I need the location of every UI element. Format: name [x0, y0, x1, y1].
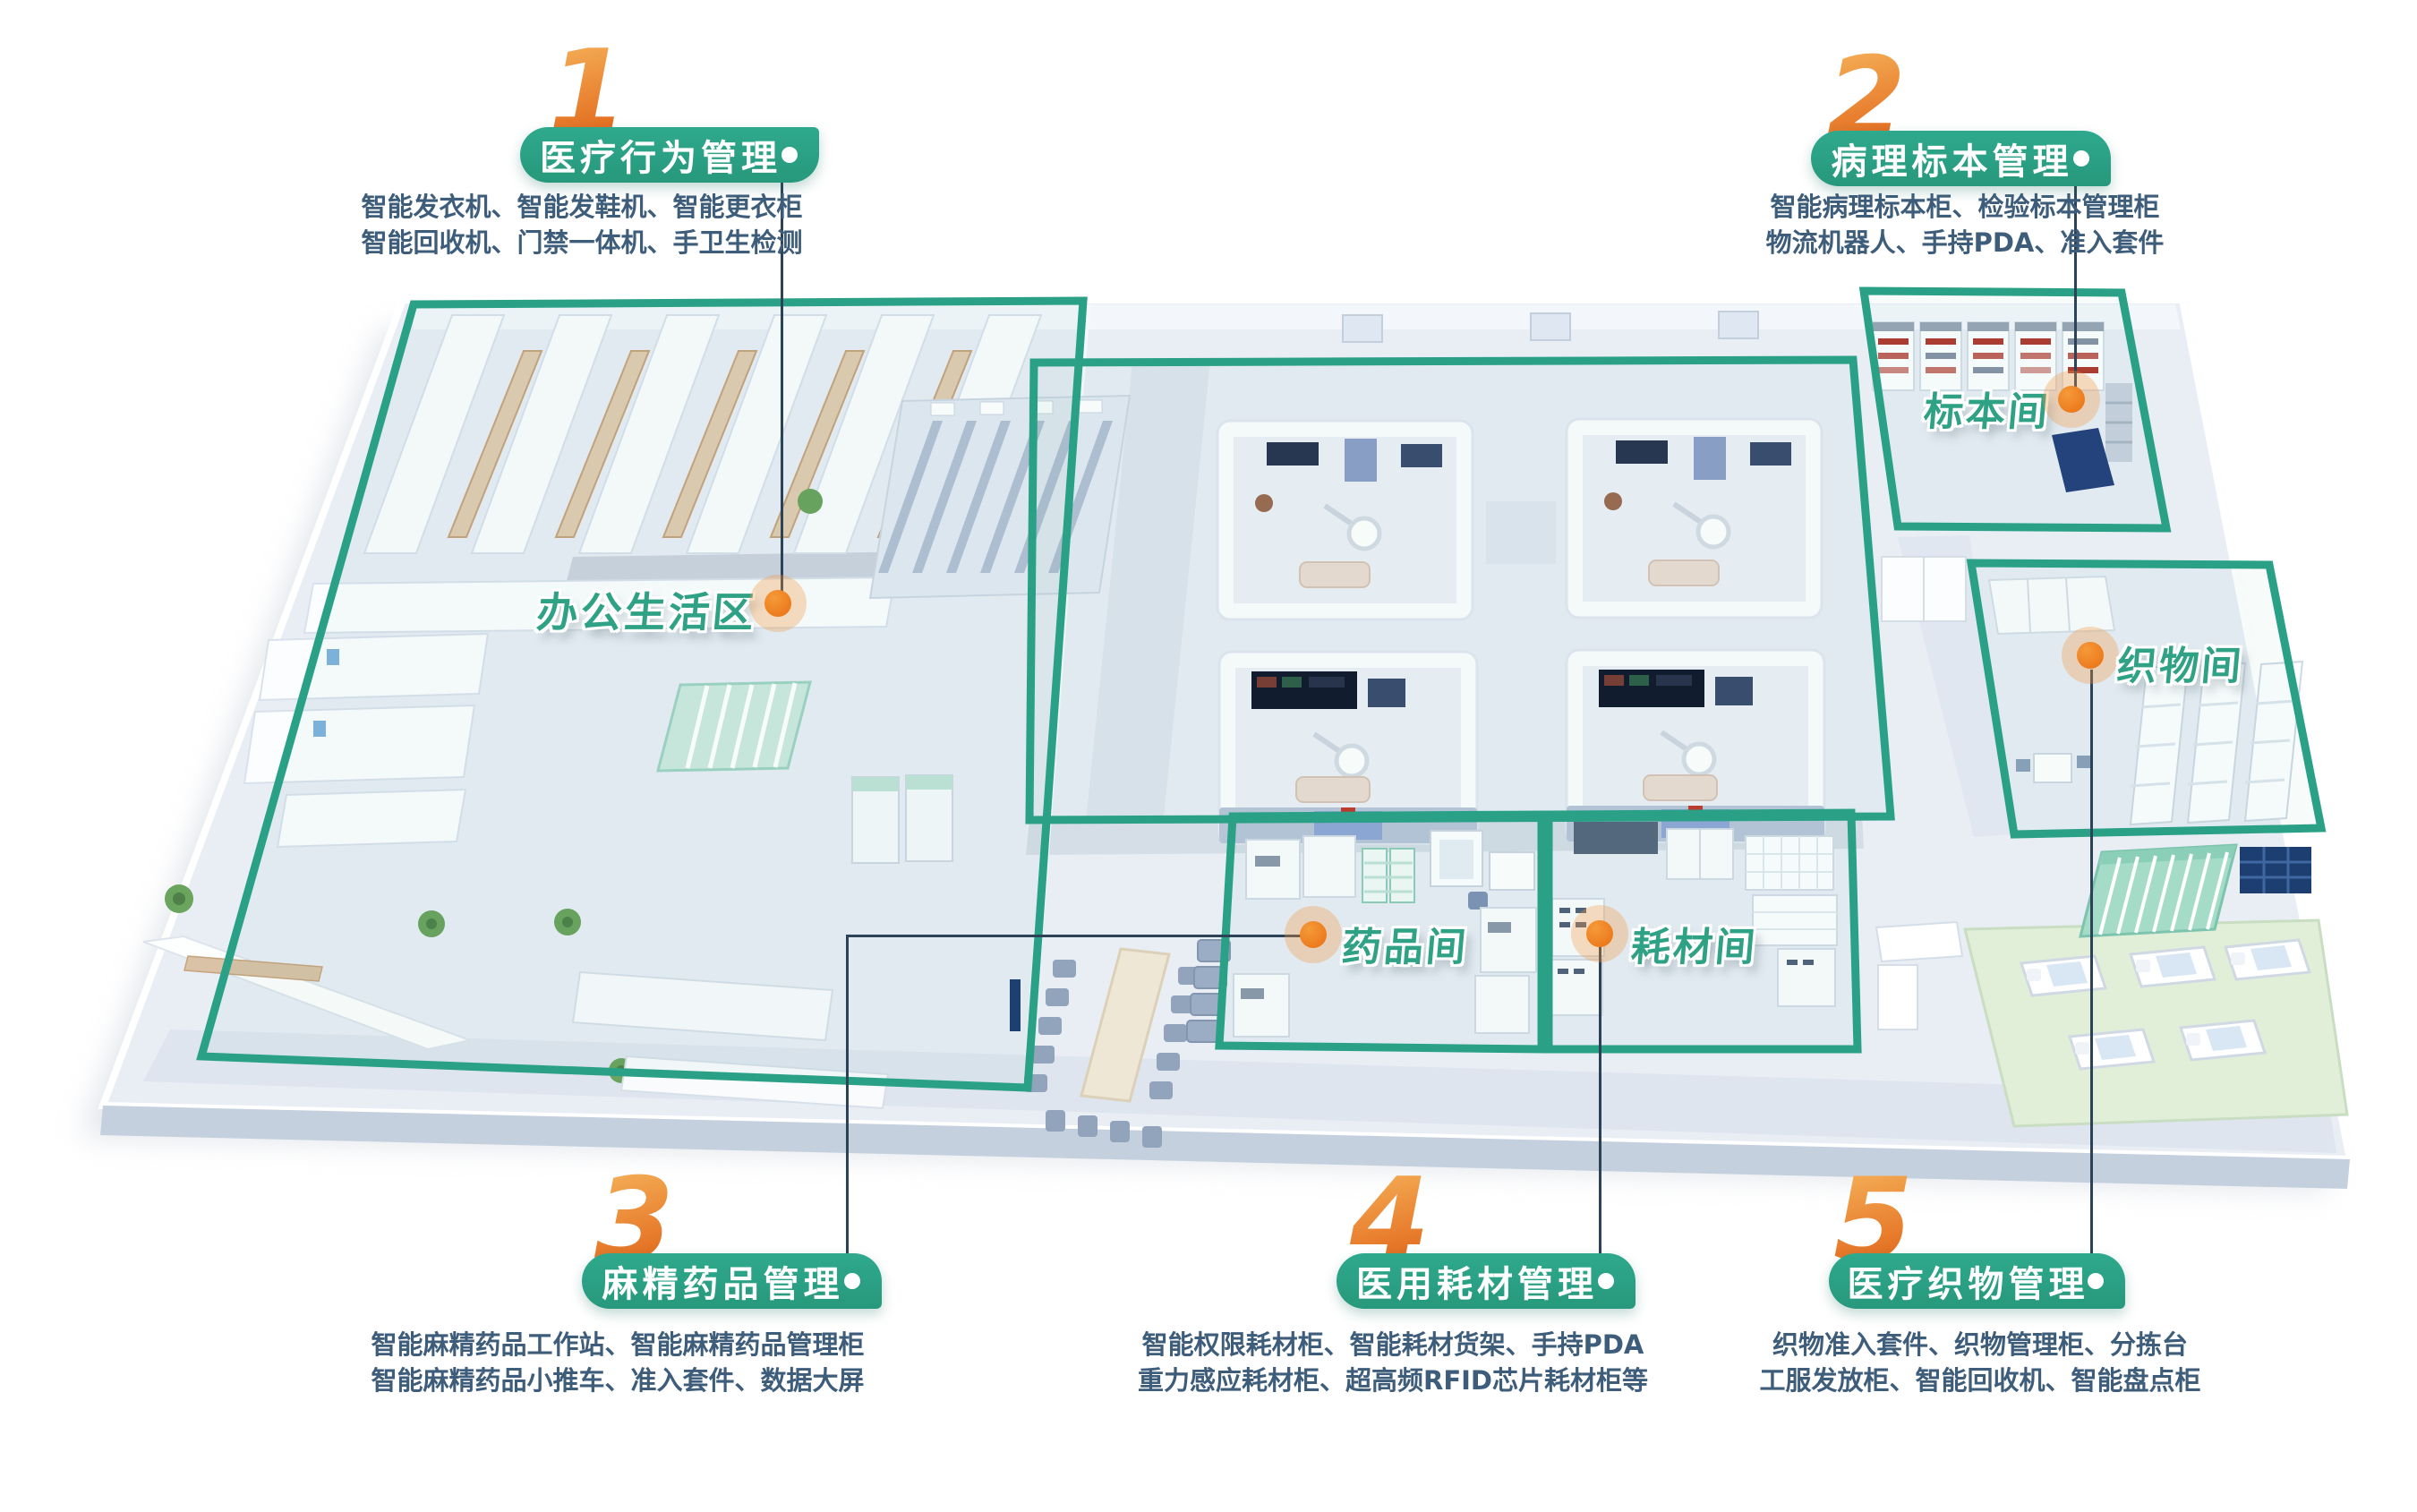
callout-1-title: 医疗行为管理	[540, 129, 781, 181]
callout-2-desc-line-2: 物流机器人、手持PDA、准入套件	[1678, 225, 2251, 261]
connector-consumable-room	[1599, 934, 1601, 1265]
uniform-dispenser-lockers	[2080, 845, 2236, 936]
callout-3-desc-line-1: 智能麻精药品工作站、智能麻精药品管理柜	[331, 1327, 904, 1363]
callout-5-desc-line-1: 织物准入套件、织物管理柜、分拣台	[1694, 1327, 2267, 1363]
zone-outline-office-area	[201, 301, 1083, 1088]
room-label-consumable-room: 耗材间	[1620, 915, 1769, 972]
callout-5-pill: 医疗织物管理	[1829, 1253, 2125, 1309]
room-marker-office-area	[749, 575, 807, 632]
connector-drug-room-v	[846, 935, 849, 1264]
callout-4-desc-line-2: 重力感应耗材柜、超高频RFID芯片耗材柜等	[1106, 1363, 1679, 1398]
callout-4-desc: 智能权限耗材柜、智能耗材货架、手持PDA 重力感应耗材柜、超高频RFID芯片耗材…	[1106, 1327, 1679, 1398]
callout-1-pill: 医疗行为管理	[520, 127, 819, 183]
hospital-bed	[2070, 1029, 2154, 1069]
callout-4-title: 医用耗材管理	[1356, 1255, 1598, 1307]
callout-1-desc-line-1: 智能发衣机、智能发鞋机、智能更衣柜	[295, 189, 868, 225]
room-label-specimen-room: 标本间	[1913, 380, 2062, 437]
connector-drug-room-h	[846, 935, 1304, 937]
callout-1-desc: 智能发衣机、智能发鞋机、智能更衣柜 智能回收机、门禁一体机、手卫生检测	[295, 189, 868, 261]
room-label-drug-room: 药品间	[1331, 915, 1480, 972]
callout-3-dot	[844, 1273, 860, 1289]
zone-outline-operating-area	[1029, 360, 1891, 820]
callout-2-desc-line-1: 智能病理标本柜、检验标本管理柜	[1678, 189, 2251, 225]
callout-2-dot	[2073, 150, 2089, 167]
room-label-office-area: 办公生活区	[512, 580, 759, 639]
callout-5-desc: 织物准入套件、织物管理柜、分拣台 工服发放柜、智能回收机、智能盘点柜	[1694, 1327, 2267, 1398]
hospital-bed	[2181, 1021, 2265, 1060]
room-label-textile-room: 织物间	[2106, 634, 2255, 691]
callout-5-dot	[2088, 1273, 2104, 1289]
callout-2-pill: 病理标本管理	[1811, 131, 2111, 186]
callout-3-desc: 智能麻精药品工作站、智能麻精药品管理柜 智能麻精药品小推车、准入套件、数据大屏	[331, 1327, 904, 1398]
room-marker-consumable-room	[1571, 905, 1628, 962]
callout-2-desc: 智能病理标本柜、检验标本管理柜 物流机器人、手持PDA、准入套件	[1678, 189, 2251, 261]
callout-5-title: 医疗织物管理	[1848, 1255, 2089, 1307]
info-screen	[2240, 847, 2311, 893]
connector-textile-room	[2090, 670, 2093, 1265]
callout-5-desc-line-2: 工服发放柜、智能回收机、智能盘点柜	[1694, 1363, 2267, 1398]
zone-outline-textile-room	[1971, 563, 2321, 834]
callout-4-dot	[1598, 1273, 1614, 1289]
callout-1-dot	[781, 147, 798, 163]
room-marker-specimen-room	[2043, 371, 2100, 428]
callout-3-pill: 麻精药品管理	[582, 1253, 882, 1309]
callout-3-desc-line-2: 智能麻精药品小推车、准入套件、数据大屏	[331, 1363, 904, 1398]
hospital-bed	[2225, 940, 2310, 979]
callout-4-desc-line-1: 智能权限耗材柜、智能耗材货架、手持PDA	[1106, 1327, 1679, 1363]
callout-2-title: 病理标本管理	[1832, 132, 2073, 184]
callout-3-title: 麻精药品管理	[602, 1255, 844, 1307]
callout-4-pill: 医用耗材管理	[1337, 1253, 1636, 1309]
callout-1-desc-line-2: 智能回收机、门禁一体机、手卫生检测	[295, 225, 868, 261]
hospital-bed	[2131, 947, 2215, 987]
